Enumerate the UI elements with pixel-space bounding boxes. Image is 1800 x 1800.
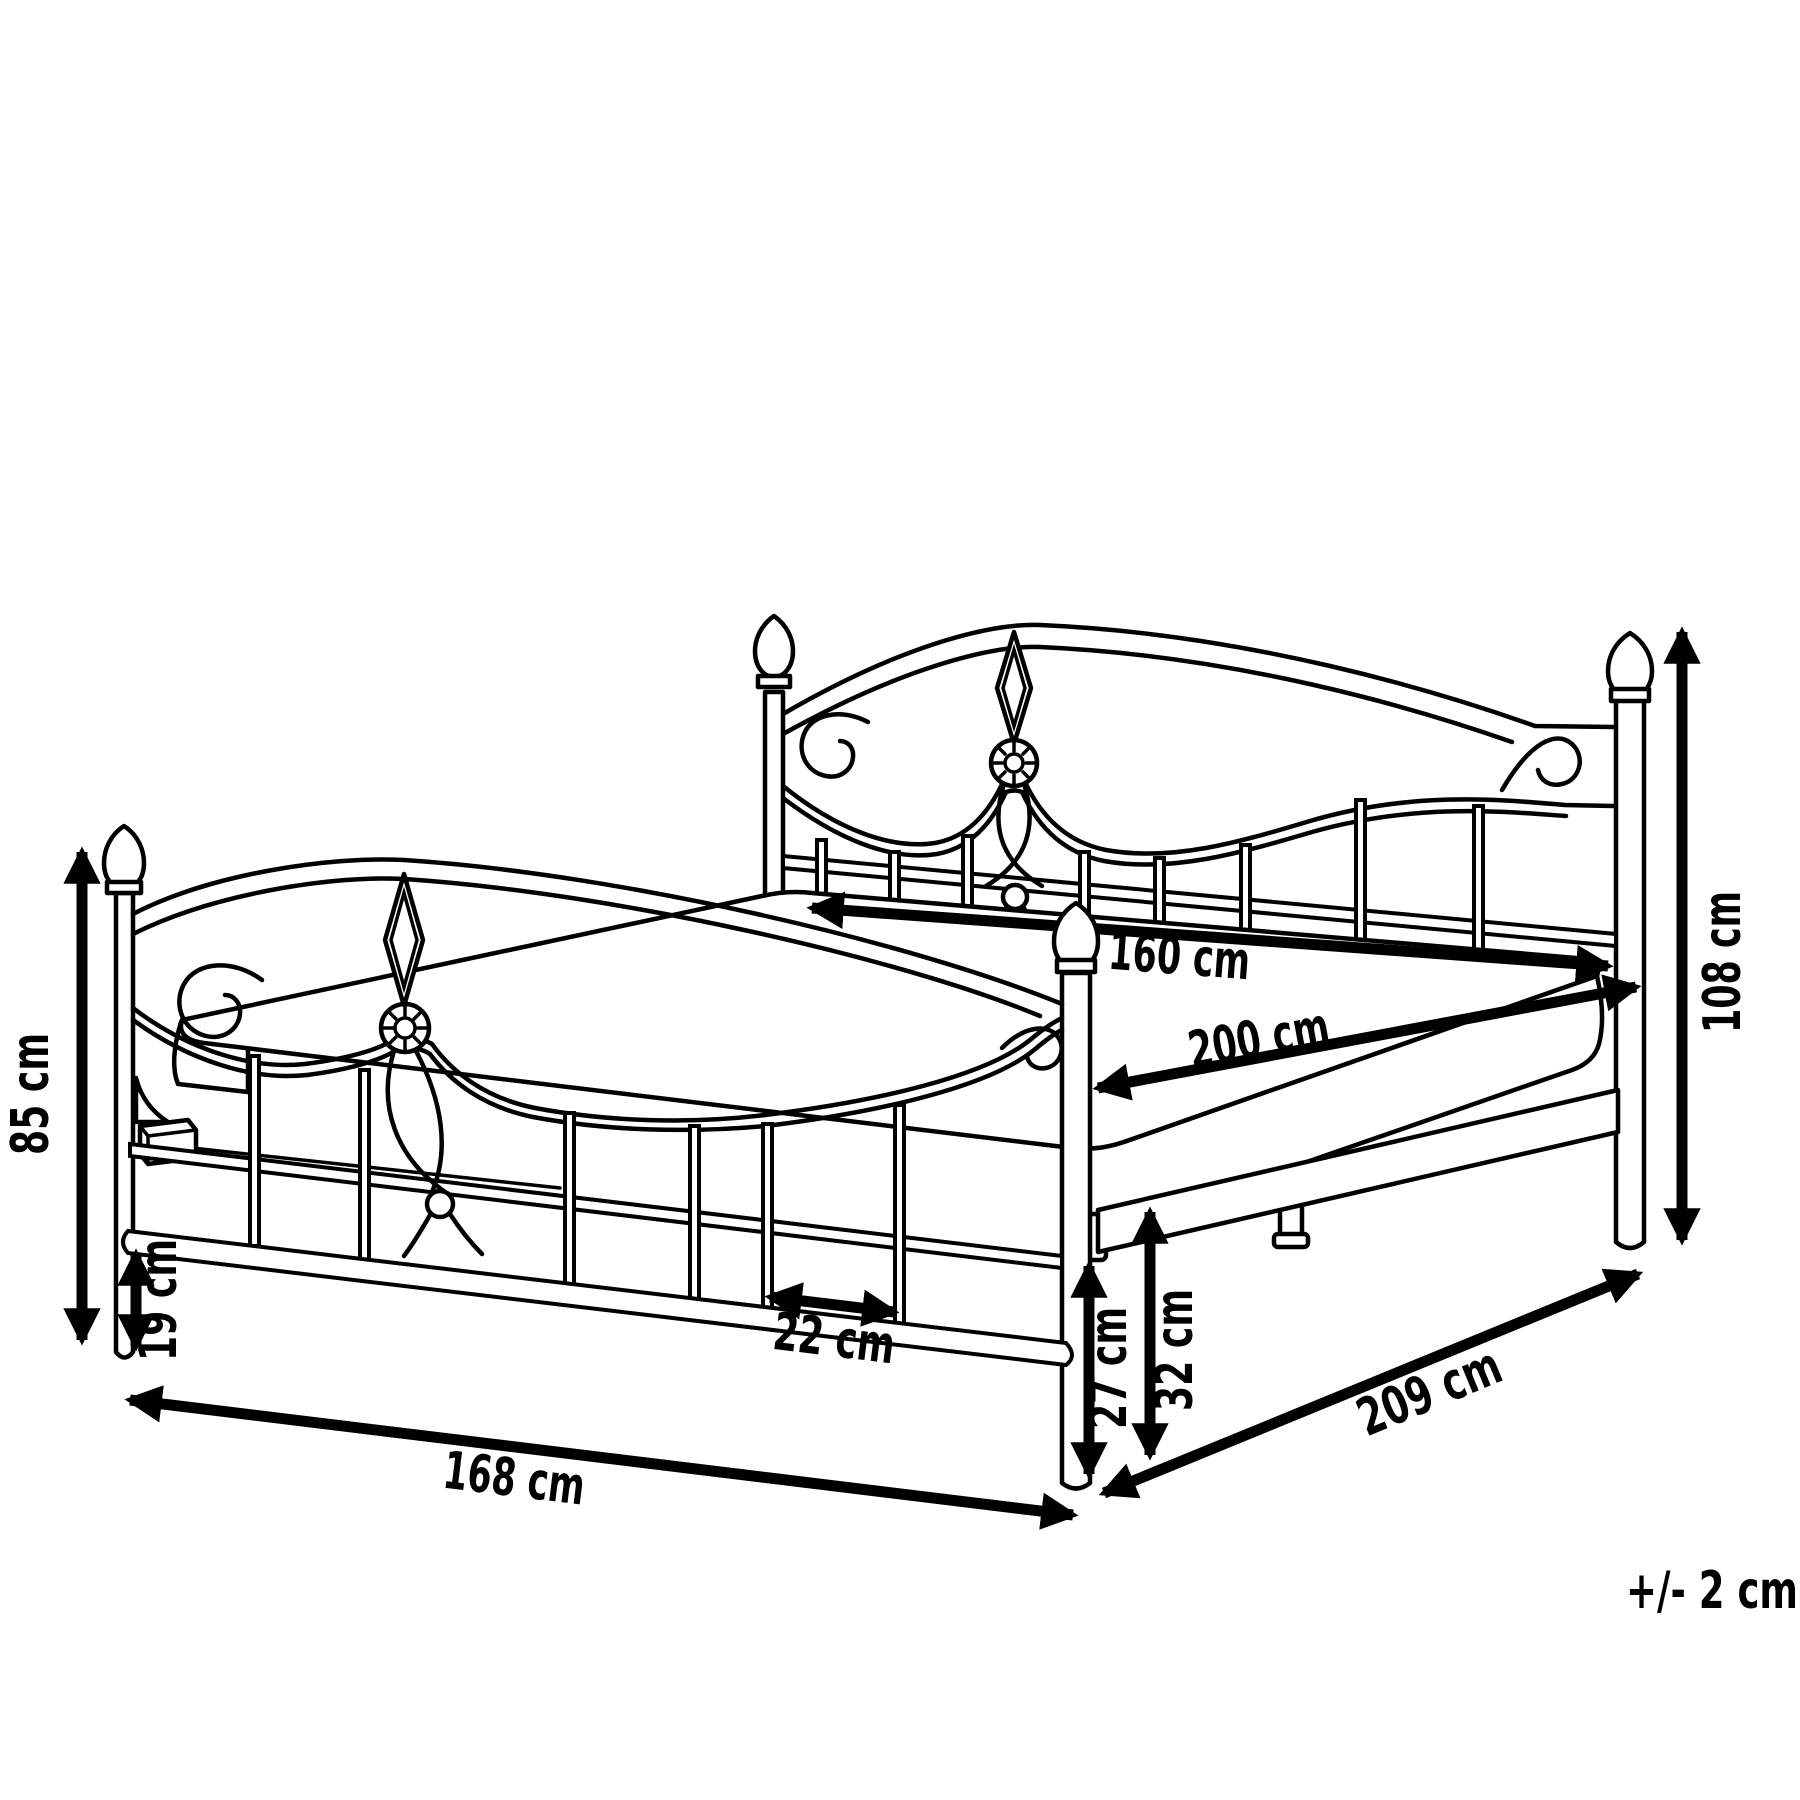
- finial-collar: [1611, 689, 1649, 701]
- finial-icon: [755, 616, 793, 677]
- finial-collar: [107, 882, 141, 893]
- finial-collar: [1057, 960, 1095, 972]
- dimension-label-32cm: 32 cm: [1145, 1289, 1205, 1411]
- dimension-label-85cm: 85 cm: [1, 1033, 61, 1155]
- scroll-ornament: [802, 714, 868, 776]
- dimension-label-209cm: 209 cm: [1349, 1336, 1511, 1449]
- bed-dimension-diagram: 85 cm 19 cm 168 cm 22 cm 160 cm 200 cm 1…: [0, 0, 1800, 1800]
- tolerance-note: +/- 2 cm: [1626, 1561, 1798, 1621]
- dimension-label-27cm: 27 cm: [1079, 1307, 1139, 1429]
- headboard-post-left: [765, 692, 783, 910]
- corner-gusset: [136, 1078, 168, 1122]
- dimension-label-160cm: 160 cm: [1106, 922, 1252, 992]
- dimension-label-108cm: 108 cm: [1693, 891, 1753, 1033]
- dimension-arrow-168cm: [130, 1400, 1073, 1515]
- scroll-ornament: [1502, 739, 1580, 790]
- finial-collar: [758, 676, 790, 687]
- finial-icon: [104, 826, 144, 889]
- headboard-post-right: [1616, 700, 1644, 1248]
- support-leg-foot: [1274, 1234, 1308, 1247]
- dimension-label-19cm: 19 cm: [129, 1239, 189, 1361]
- diagram-canvas: 85 cm 19 cm 168 cm 22 cm 160 cm 200 cm 1…: [0, 0, 1800, 1800]
